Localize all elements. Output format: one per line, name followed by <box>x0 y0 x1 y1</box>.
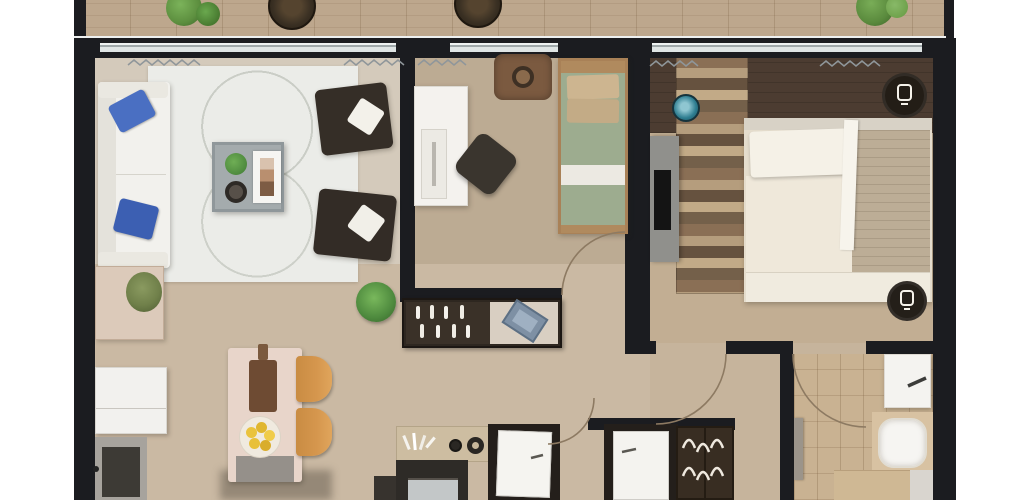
tv <box>654 170 671 230</box>
oven <box>396 460 468 500</box>
ceiling-lamp-top <box>882 73 927 118</box>
bar-stool-1 <box>296 356 332 402</box>
master-bed-pillow <box>749 128 849 177</box>
rustic-wood-runner <box>676 56 748 294</box>
wardrobe <box>676 426 734 500</box>
single-bed <box>558 58 628 234</box>
wall-master-bottom-mid <box>726 341 793 354</box>
utensil <box>412 433 416 450</box>
wall-right <box>933 38 956 500</box>
door-leaf-1 <box>496 430 552 498</box>
fridge <box>95 367 167 434</box>
window-living <box>100 43 396 52</box>
window-master <box>652 43 922 52</box>
window-office <box>450 43 558 52</box>
desk-drawer-slot <box>432 142 436 186</box>
coffee-table-plant <box>225 153 247 175</box>
vanity-sink <box>884 354 931 408</box>
armchair-1-pillow <box>346 97 385 136</box>
sideboard-plant <box>126 272 162 312</box>
pet-bed-pouf <box>494 54 552 100</box>
wall-office-master <box>625 56 650 354</box>
bottle <box>452 324 456 338</box>
fridge-seam <box>96 408 166 409</box>
bottle <box>420 324 424 338</box>
single-bed-pillow-2 <box>567 99 619 124</box>
utensil <box>425 437 436 449</box>
burner-small <box>449 439 462 452</box>
bathtub-deck <box>872 412 933 474</box>
kitchen-island <box>228 348 302 482</box>
single-bed-white-strip <box>561 165 625 185</box>
teal-stool <box>672 94 700 122</box>
master-bed <box>744 118 932 302</box>
coffee-table-magazine <box>253 151 281 203</box>
wall-master-bottom-left <box>650 341 656 354</box>
cutting-board <box>249 360 277 412</box>
wall-bathroom-left <box>780 354 794 500</box>
door-frame-2 <box>604 424 678 500</box>
bottle <box>416 306 420 319</box>
door-frame-1 <box>488 424 560 500</box>
towel-rail <box>794 418 803 480</box>
coffee-table <box>212 142 284 212</box>
single-bed-footboard <box>561 225 625 233</box>
desk-drawer-unit <box>421 129 447 199</box>
bathtub <box>878 418 927 468</box>
bottle <box>436 325 440 338</box>
bottle <box>466 325 470 338</box>
fruit <box>249 438 260 449</box>
desk <box>414 86 468 206</box>
cutting-board-handle <box>258 344 268 360</box>
armchair-2-pillow <box>347 204 386 243</box>
fruit <box>260 440 271 451</box>
armchair-1 <box>314 82 394 156</box>
sofa-cushion-seam <box>116 174 166 175</box>
island-base-shadow <box>236 456 294 482</box>
floor-plant-console <box>356 282 396 322</box>
tray-detail <box>512 309 538 333</box>
ceiling-lamp-bottom <box>887 281 927 321</box>
bottle <box>430 305 434 319</box>
single-bed-headboard <box>561 61 625 73</box>
pouf-ring <box>512 66 534 88</box>
kitchen-counter <box>396 426 492 462</box>
wall-left-sliver <box>74 0 86 40</box>
counter-side-block <box>374 476 396 500</box>
wall-left <box>74 38 95 500</box>
utensil <box>419 435 426 450</box>
wardrobe-hangers <box>678 428 732 498</box>
entry-unit <box>95 437 147 500</box>
coffee-table-bowl <box>225 181 247 203</box>
utensil <box>402 435 410 450</box>
armchair-2 <box>313 188 397 262</box>
oven-door <box>408 478 458 500</box>
wall-living-office <box>400 56 415 298</box>
entry-unit-panel <box>102 447 140 497</box>
floor-plan-image <box>0 0 1024 500</box>
balcony-plant-left-2 <box>196 2 220 26</box>
bath-white-block <box>910 470 933 500</box>
door-leaf-2 <box>613 431 669 500</box>
tv-console <box>650 136 679 262</box>
bottle <box>460 305 464 319</box>
bath-cabinet <box>834 470 910 500</box>
entry-unit-knob <box>93 466 99 472</box>
bottle <box>444 306 448 319</box>
lamp-icon-bottom <box>887 281 927 321</box>
bar-stool-2 <box>296 408 332 456</box>
magazine-photo <box>260 158 274 196</box>
wall-right-sliver <box>944 0 954 40</box>
wall-master-bottom-right <box>866 341 933 354</box>
fruit-bowl <box>239 416 281 458</box>
console-shelf <box>402 298 562 348</box>
single-bed-pillow-1 <box>567 74 620 100</box>
burner-large <box>467 437 484 454</box>
lamp-icon-top <box>882 73 927 118</box>
